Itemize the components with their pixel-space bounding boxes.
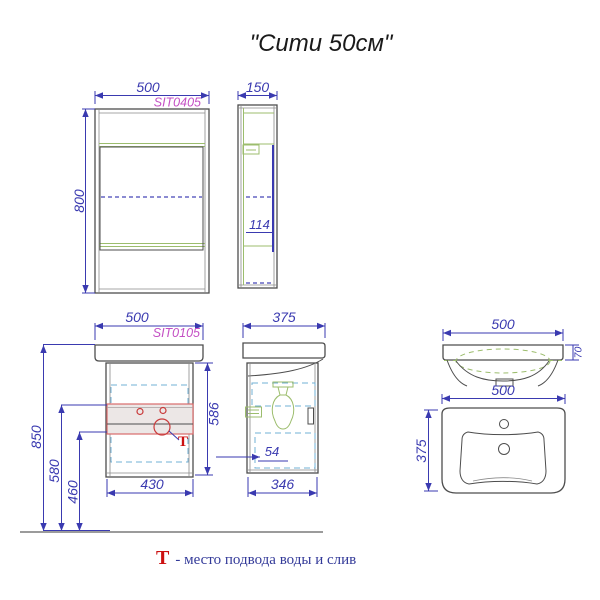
- basin-width-dim: 500: [491, 316, 515, 332]
- cabinet-outline: [95, 109, 209, 293]
- technical-drawing-canvas: "Сити 50см" 500 SIT0405: [0, 0, 600, 600]
- mirror-model-label: SIT0405: [154, 96, 201, 110]
- supply-mark: Т: [178, 434, 188, 450]
- basin-plan-depth-dim: 375: [413, 439, 429, 463]
- vanity-side-view: 54 375 346: [216, 309, 325, 497]
- mirror-cabinet-front-view: 500 SIT0405 800: [71, 79, 209, 293]
- mirror-height-dim: 800: [71, 189, 87, 213]
- bowl-floor-curve: [473, 478, 532, 481]
- legend-supply-symbol: Т: [156, 548, 169, 568]
- mirror-depth-dim: 114: [249, 217, 270, 232]
- sink-front-outline: [95, 345, 203, 361]
- hinge-icon: [246, 407, 262, 417]
- mirror-width-dim: 500: [136, 79, 160, 95]
- basin-front-view: 500 70: [443, 316, 585, 386]
- cabinet-width-dim: 430: [140, 476, 164, 492]
- legend-text: - место подвода воды и слив: [175, 552, 356, 569]
- faucet-hole: [500, 420, 509, 429]
- drain-height-dim: 460: [65, 480, 81, 504]
- handle-profile: [308, 408, 314, 424]
- vanity-model-label: SIT0105: [153, 326, 200, 340]
- bowl-curve: [456, 361, 549, 381]
- basin-top-view: 500 375: [413, 382, 565, 493]
- mirror-door: [100, 147, 203, 250]
- vanity-width-dim: 500: [125, 309, 149, 325]
- bowl-wing: [447, 360, 467, 386]
- legend: Т - место подвода воды и слив: [156, 548, 356, 569]
- total-height-dim: 850: [28, 425, 44, 449]
- rim-height-dim: 70: [573, 347, 585, 359]
- basin-plan-width-dim: 500: [491, 382, 515, 398]
- offset-dim: 54: [265, 444, 279, 459]
- vanity-bottom-depth-dim: 346: [271, 476, 295, 492]
- mirror-cabinet-side-view: 114 150: [238, 79, 277, 288]
- vanity-depth-dim: 375: [272, 309, 296, 325]
- drawing-sheet: 500 SIT0405 800 114: [0, 0, 600, 600]
- basin-rim-outline: [443, 345, 563, 360]
- basin-bowl-outline: [460, 432, 546, 484]
- supply-zone: [107, 404, 193, 434]
- mirror-side-width-dim: 150: [246, 79, 270, 95]
- supply-height-dim: 580: [46, 459, 62, 483]
- cabinet-height-dim: 586: [206, 402, 222, 426]
- basin-plan-outline: [442, 408, 565, 493]
- drain-hole: [499, 444, 510, 455]
- siphon-icon: [272, 395, 293, 429]
- basin-hidden-rim: [456, 349, 550, 373]
- siphon-neck: [278, 387, 288, 395]
- sink-side-outline: [243, 343, 325, 358]
- basin-bottom-curve: [248, 359, 323, 376]
